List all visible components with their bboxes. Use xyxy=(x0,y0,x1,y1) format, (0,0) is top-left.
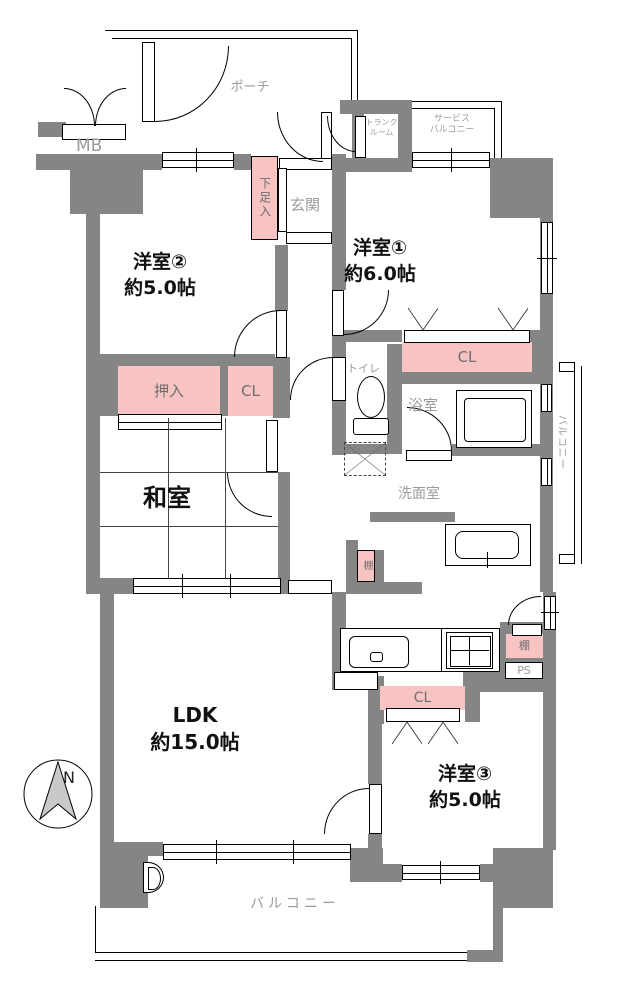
western2-door-arc xyxy=(234,310,281,357)
porch-gate-frame xyxy=(142,42,155,122)
side-balcony-label-box: バルコニー xyxy=(551,392,571,492)
wall xyxy=(387,344,402,454)
wall xyxy=(346,582,422,594)
kitchen-stove-inner xyxy=(450,636,491,667)
wall xyxy=(148,842,163,856)
wall xyxy=(465,676,480,722)
kitchen-door-leaf xyxy=(512,624,542,636)
window xyxy=(162,152,234,168)
north-compass: N xyxy=(22,757,94,829)
ldk-size: 約15.0帖 xyxy=(125,729,265,756)
service-balcony-line1: サービス xyxy=(408,114,496,125)
wall xyxy=(234,154,251,170)
pipe-space: PS xyxy=(505,662,543,679)
toilet-bowl xyxy=(357,376,385,418)
window-tick xyxy=(451,148,452,172)
western3-size: 約5.0帖 xyxy=(395,788,535,814)
toilet-door-leaf xyxy=(332,357,346,401)
toilet-tank xyxy=(353,418,389,435)
service-balcony-label: サービス バルコニー xyxy=(408,114,496,136)
bifold-mark xyxy=(392,722,422,744)
wall xyxy=(278,472,290,594)
bifold-mark xyxy=(408,308,438,330)
western3-room-label: 洋室③ 約5.0帖 xyxy=(395,762,535,813)
shoe-cabinet-door xyxy=(278,168,287,232)
shelf-kitchen: 棚 xyxy=(506,634,543,658)
porch-outline xyxy=(105,30,358,31)
window-tick xyxy=(293,840,294,864)
closet-western1-shelf xyxy=(404,330,530,343)
side-balcony-railing xyxy=(574,366,575,564)
oshiire-label: 押入 xyxy=(154,382,184,400)
shelf-washroom-label: 棚 xyxy=(360,560,372,572)
wall xyxy=(275,245,288,311)
wall xyxy=(493,848,553,908)
bifold-mark xyxy=(428,722,458,744)
window-tick xyxy=(182,574,183,598)
western1-door-leaf xyxy=(332,290,344,336)
washer-pan xyxy=(344,442,386,476)
kitchen-door-arc xyxy=(508,596,541,625)
closet-hall: CL xyxy=(228,366,273,416)
japanese-room-sliding-door xyxy=(133,578,281,594)
side-balcony-cap xyxy=(559,362,575,372)
toilet-label: トイレ xyxy=(347,362,380,375)
wall xyxy=(480,864,495,882)
wall xyxy=(70,170,143,214)
closet-western3-label: CL xyxy=(414,690,432,707)
trunk-room-line2: ルーム xyxy=(362,128,401,138)
kitchen-faucet xyxy=(370,652,383,662)
trunk-room-line1: トランク xyxy=(362,118,401,128)
wall xyxy=(100,368,118,416)
balcony-outline xyxy=(95,960,470,961)
wall xyxy=(368,724,382,784)
western1-size: 約6.0帖 xyxy=(310,262,450,288)
shoe-cabinet-label: 下足入 xyxy=(257,177,271,219)
oshiire-closet: 押入 xyxy=(118,366,220,416)
stove-line xyxy=(450,650,489,651)
western2-name: 洋室② xyxy=(90,250,230,276)
wall xyxy=(36,154,162,170)
meter-box-label: MB xyxy=(76,136,102,156)
wall xyxy=(543,592,556,850)
balcony-sliding-window xyxy=(163,844,351,860)
shoe-cabinet: 下足入 xyxy=(251,156,278,240)
kitchen-divider xyxy=(441,629,442,671)
toilet-door-arc xyxy=(290,357,333,400)
bifold-mark xyxy=(498,308,528,330)
closet-western3: CL xyxy=(380,686,465,710)
window-tick xyxy=(196,148,197,172)
wall xyxy=(368,864,402,882)
side-balcony-label: バルコニー xyxy=(555,415,567,470)
western3-window xyxy=(402,865,480,880)
wall xyxy=(100,578,133,594)
kitchen-window xyxy=(544,596,556,630)
trunk-room-label: トランク ルーム xyxy=(362,118,401,137)
shelf-washroom: 棚 xyxy=(357,550,375,582)
wall xyxy=(340,158,412,172)
wall xyxy=(467,950,503,962)
wall xyxy=(273,357,290,418)
floor-plan: 下足入 押入 CL CL 棚 棚 CL xyxy=(0,0,618,988)
balcony-outline xyxy=(95,952,470,953)
window-tick xyxy=(541,612,559,613)
service-balcony-outline xyxy=(404,101,502,102)
balcony-outline xyxy=(95,906,96,953)
north-label: N xyxy=(63,768,75,787)
service-balcony-outline xyxy=(404,108,495,109)
western3-door-arc xyxy=(324,788,369,834)
porch-outline xyxy=(112,38,352,39)
western1-door-arc xyxy=(344,290,389,335)
wall xyxy=(394,370,540,384)
wall xyxy=(375,550,384,582)
porch-label: ポーチ xyxy=(210,80,290,96)
service-balcony-line2: バルコニー xyxy=(408,125,496,136)
meter-box-door-arc xyxy=(95,88,126,126)
hall-step xyxy=(288,580,332,594)
window-tick xyxy=(537,258,557,259)
wall xyxy=(493,908,503,956)
service-balcony-outline xyxy=(501,101,502,158)
kitchen-cabinet xyxy=(334,672,378,690)
ldk-name: LDK xyxy=(125,702,265,729)
wall xyxy=(220,368,228,416)
western1-room-label: 洋室① 約6.0帖 xyxy=(310,236,450,287)
western3-name: 洋室③ xyxy=(395,762,535,788)
window-tick xyxy=(230,574,231,598)
japanese-room-label: 和室 xyxy=(143,482,191,514)
bathroom-threshold xyxy=(406,450,452,461)
closet-western1: CL xyxy=(402,342,532,372)
closet-western1-label: CL xyxy=(458,348,477,366)
window-tick xyxy=(216,840,217,864)
wall xyxy=(370,512,455,522)
entrance-door-arc xyxy=(277,112,323,162)
meter-box-door-arc xyxy=(64,88,95,126)
entrance-label: 玄関 xyxy=(290,196,320,214)
window-tick xyxy=(440,861,441,884)
closet-hall-label: CL xyxy=(241,382,260,400)
washroom-label: 洗面室 xyxy=(398,486,440,503)
vanity-tap xyxy=(487,552,488,568)
japanese-room-door-arc xyxy=(227,472,272,517)
tatami-line xyxy=(225,418,226,578)
western1-name: 洋室① xyxy=(310,236,450,262)
western2-room-label: 洋室② 約5.0帖 xyxy=(90,250,230,301)
side-balcony-railing xyxy=(581,366,582,564)
bathroom-label: 浴室 xyxy=(408,396,438,414)
western2-size: 約5.0帖 xyxy=(90,276,230,302)
japanese-room-door-leaf xyxy=(266,420,278,472)
wall xyxy=(100,842,148,908)
pipe-space-label: PS xyxy=(517,664,531,677)
closet-western3-shelf xyxy=(386,708,460,722)
western3-door-leaf xyxy=(369,784,382,834)
tatami-line xyxy=(100,472,278,473)
ldk-label: LDK 約15.0帖 xyxy=(125,702,265,756)
oshiire-sliding-door xyxy=(118,414,222,430)
bathtub-inner xyxy=(464,398,526,442)
wall xyxy=(100,594,114,848)
side-balcony-cap xyxy=(559,554,575,564)
tatami-line xyxy=(100,526,278,527)
shelf-kitchen-label: 棚 xyxy=(519,639,530,652)
wall xyxy=(490,158,553,218)
balcony-label: バルコニー xyxy=(240,896,350,913)
